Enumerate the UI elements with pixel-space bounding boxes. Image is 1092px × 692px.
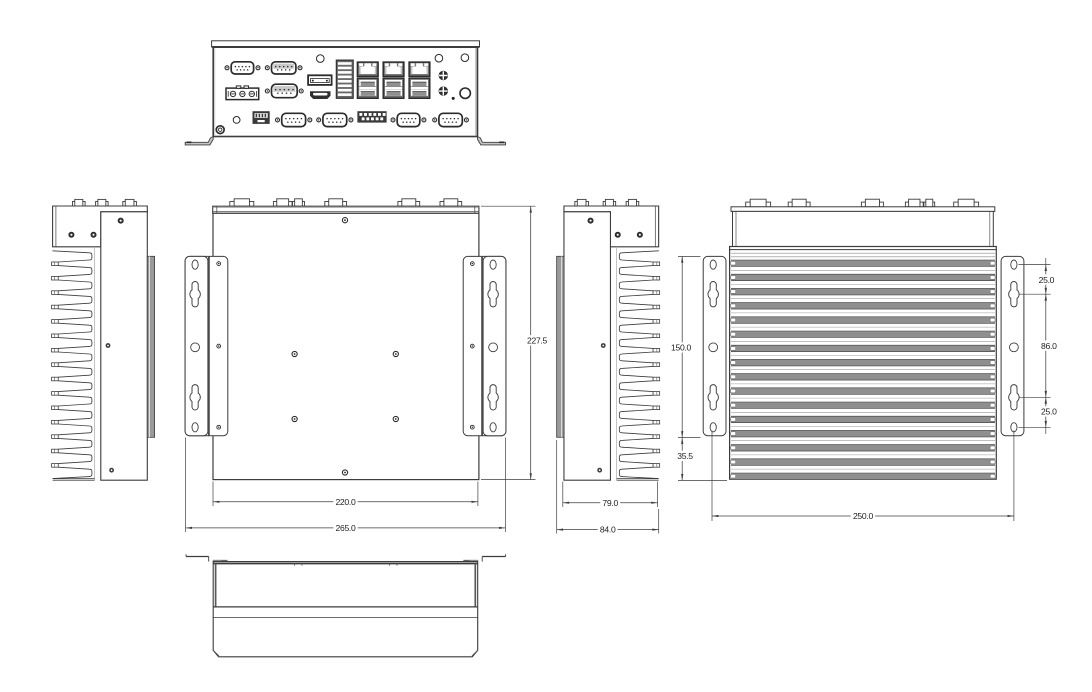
- svg-text:250.0: 250.0: [853, 511, 874, 521]
- svg-text:150.0: 150.0: [671, 343, 692, 353]
- svg-text:227.5: 227.5: [527, 336, 548, 346]
- svg-text:35.5: 35.5: [677, 451, 693, 461]
- svg-text:265.0: 265.0: [335, 523, 356, 533]
- svg-text:79.0: 79.0: [602, 498, 618, 508]
- svg-text:86.0: 86.0: [1041, 341, 1057, 351]
- svg-text:84.0: 84.0: [600, 525, 616, 535]
- svg-text:25.0: 25.0: [1039, 275, 1055, 285]
- svg-text:220.0: 220.0: [335, 497, 356, 507]
- svg-text:25.0: 25.0: [1041, 407, 1057, 417]
